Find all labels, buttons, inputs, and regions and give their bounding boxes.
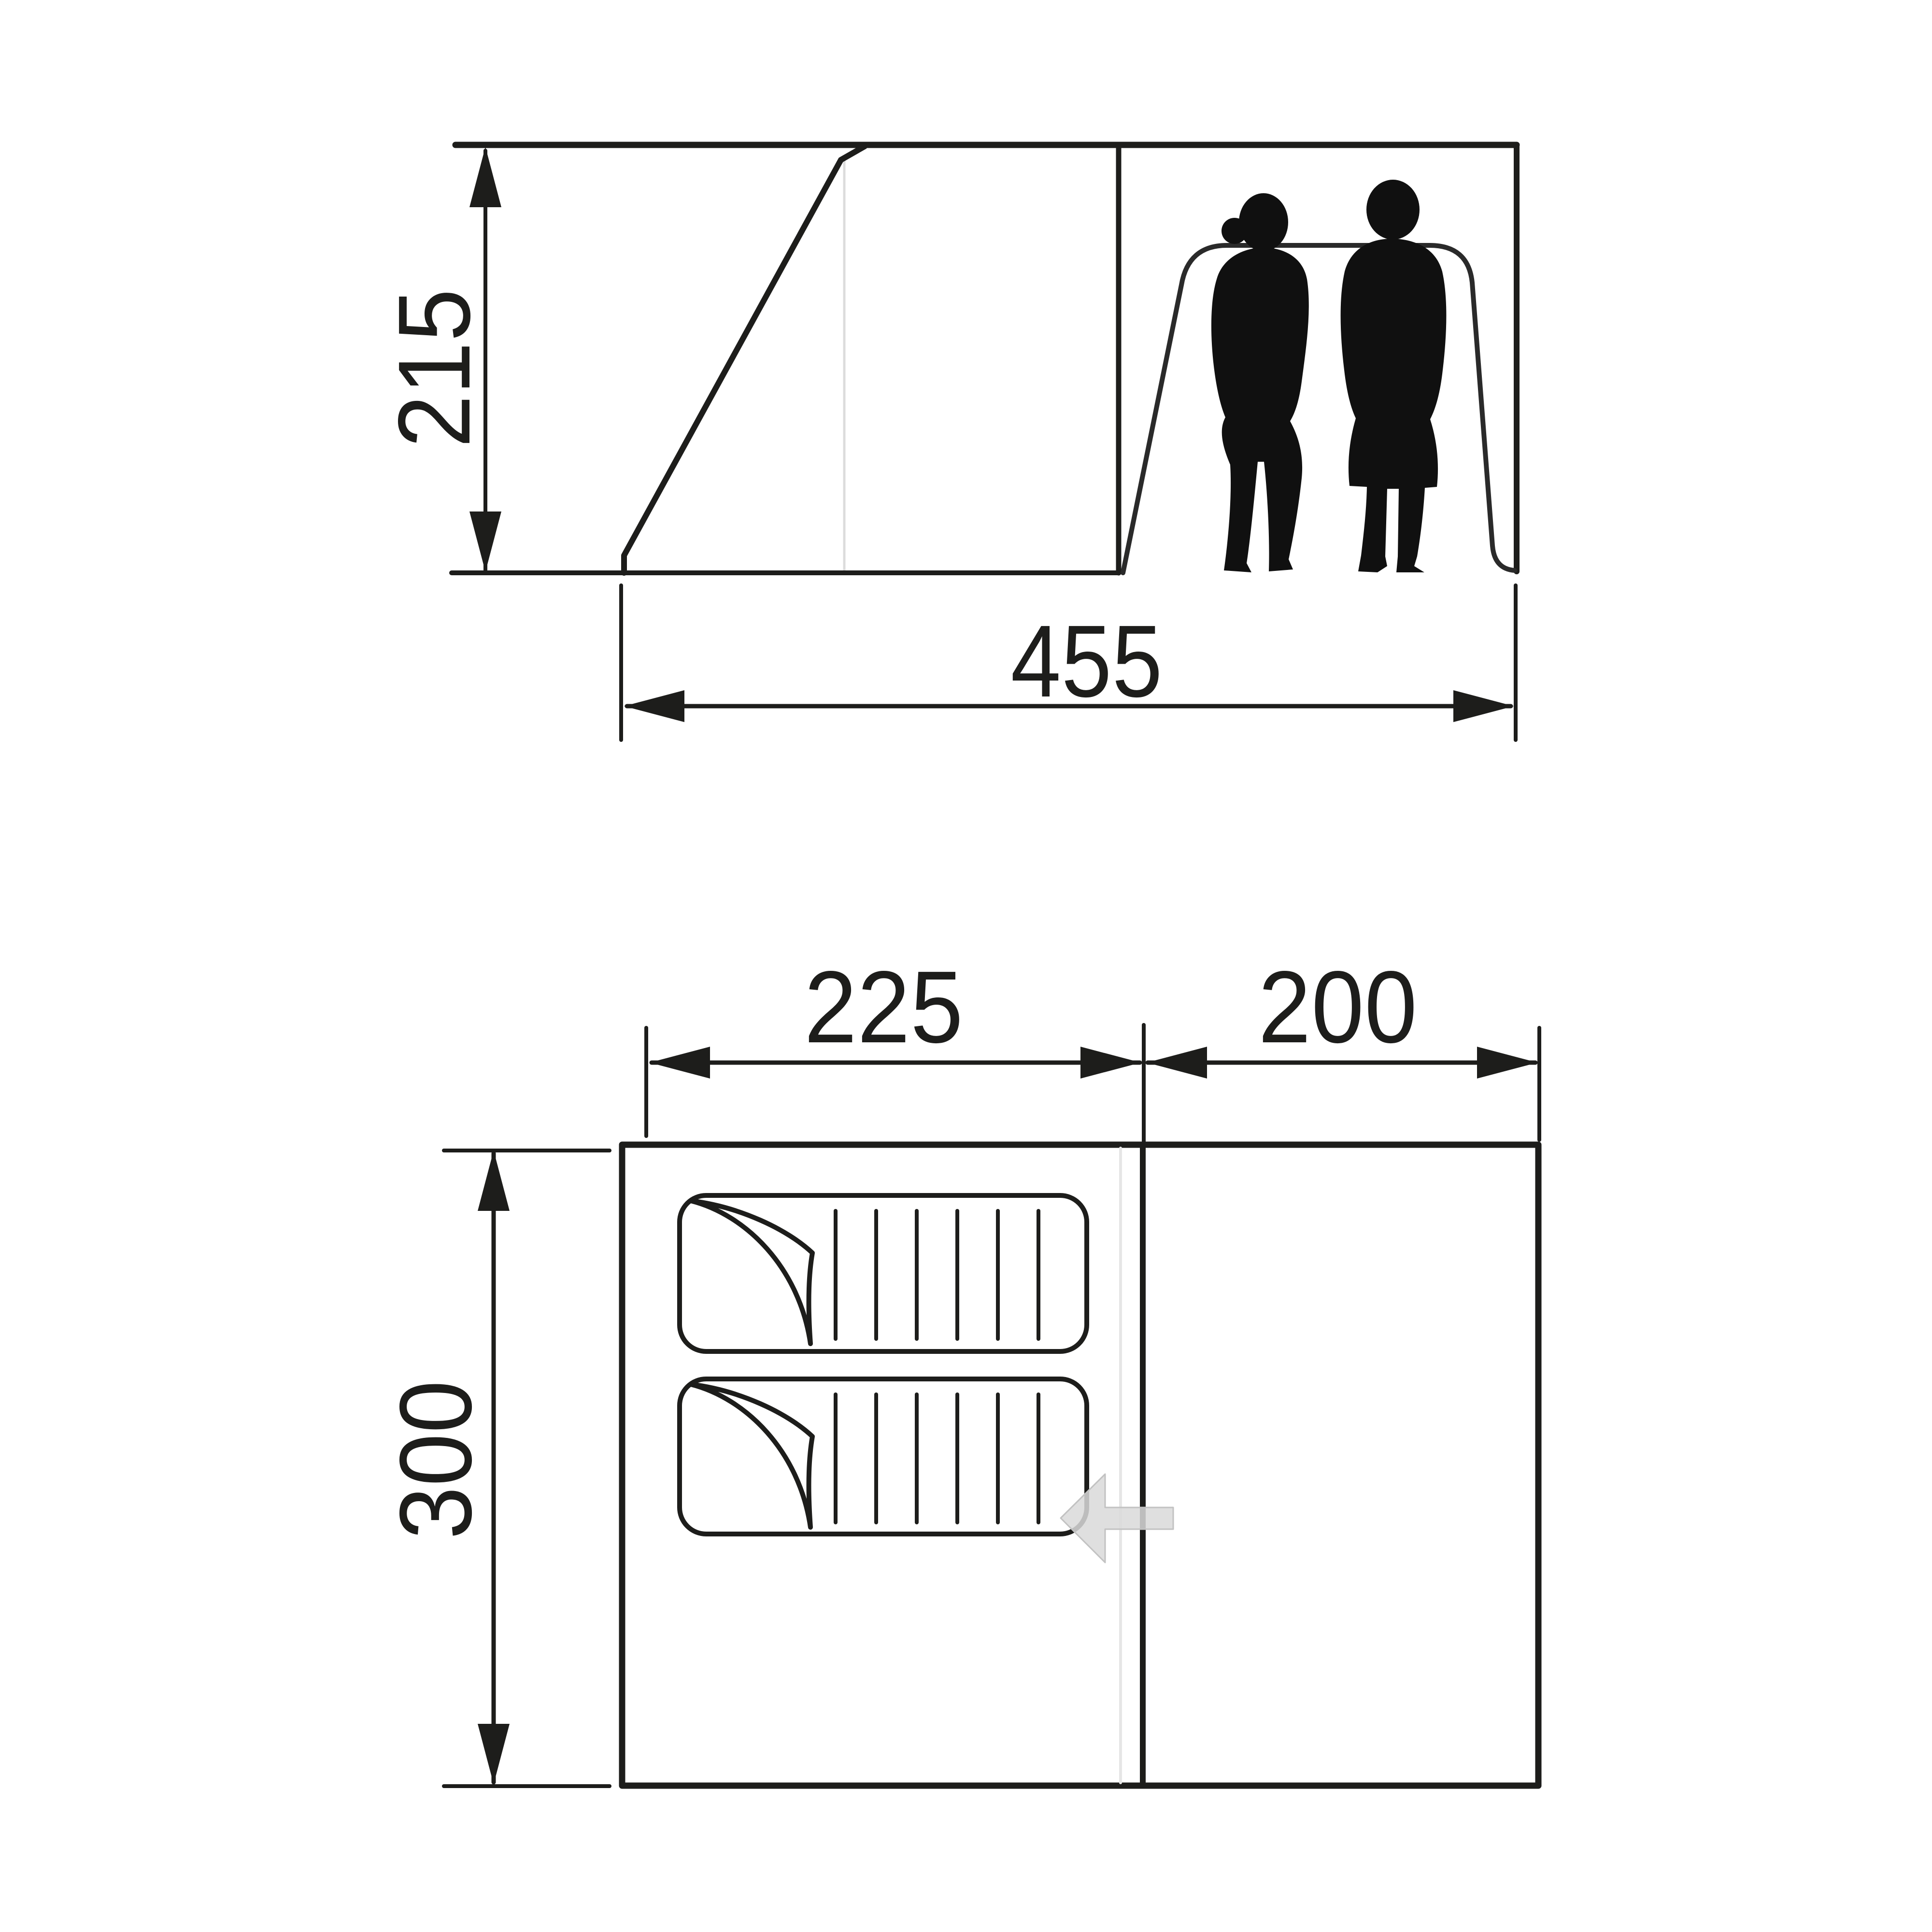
- width-arrowhead-right-icon: [1453, 690, 1514, 722]
- people-silhouettes-icon: [1211, 180, 1447, 572]
- woman-head: [1239, 193, 1288, 251]
- sleeping-area-width-label: 225: [804, 950, 964, 1064]
- tent-rear-slant-line: [624, 146, 865, 573]
- arrowhead-left-icon: [1147, 1047, 1207, 1079]
- height-arrowhead-down-icon: [469, 511, 501, 572]
- depth-dimension: 300: [378, 1151, 610, 1786]
- height-arrowhead-up-icon: [469, 147, 501, 207]
- woman-silhouette-icon: [1211, 193, 1309, 572]
- width-dimension: 455: [621, 585, 1516, 740]
- floor-plan: 225 200 300: [378, 950, 1539, 1786]
- door-arch-frame: [1123, 245, 1515, 573]
- living-area-width-dimension: 200: [1147, 950, 1539, 1140]
- living-area-width-label: 200: [1258, 950, 1418, 1064]
- arrowhead-down-icon: [478, 1724, 510, 1784]
- sleeping-area-width-dimension: 225: [646, 950, 1144, 1143]
- arrowhead-up-icon: [478, 1151, 510, 1211]
- tent-dimension-diagram: 215 455: [0, 0, 1932, 1932]
- width-arrowhead-left-icon: [624, 690, 684, 722]
- diagram-canvas: 215 455: [0, 0, 1932, 1932]
- man-silhouette-icon: [1341, 180, 1447, 572]
- depth-dimension-label: 300: [378, 1380, 493, 1539]
- woman-body: [1211, 247, 1309, 572]
- arrowhead-right-icon: [1477, 1047, 1537, 1079]
- width-dimension-label: 455: [1011, 604, 1163, 718]
- arrowhead-left-icon: [650, 1047, 710, 1079]
- man-body: [1341, 239, 1447, 572]
- arrowhead-right-icon: [1080, 1047, 1141, 1079]
- height-dimension: 215: [377, 147, 501, 572]
- side-view: 215 455: [377, 145, 1517, 740]
- height-dimension-label: 215: [377, 288, 491, 448]
- man-head: [1366, 180, 1420, 240]
